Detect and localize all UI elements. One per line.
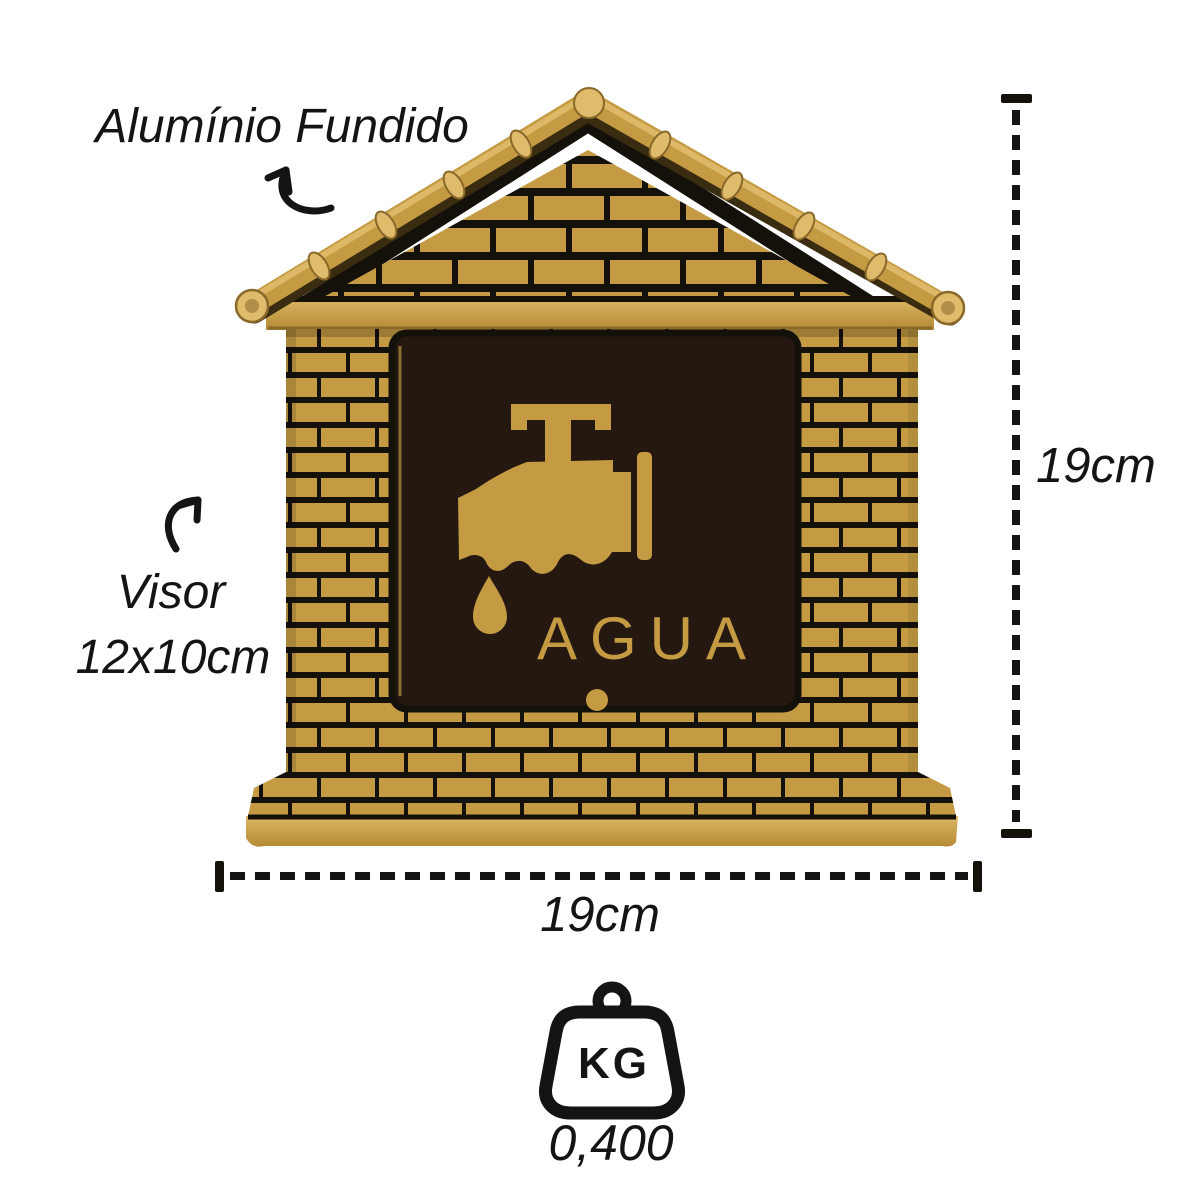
weight-unit-label: KG <box>578 1039 650 1088</box>
material-arrow <box>268 170 331 211</box>
visor-label-line1: Visor <box>117 566 228 619</box>
height-dimension-line <box>1001 94 1032 838</box>
visor-label-line2: 12x10cm <box>76 631 271 684</box>
base-bricks <box>248 772 956 816</box>
agua-label: AGUA <box>537 605 759 672</box>
inspection-window: AGUA <box>392 333 798 711</box>
product-dimension-diagram: AGUA <box>0 0 1200 1200</box>
material-label: Alumínio Fundido <box>92 100 469 153</box>
height-dimension-label: 19cm <box>1036 439 1156 493</box>
weight-icon: KG <box>546 987 679 1113</box>
weight-value: 0,400 <box>548 1115 673 1171</box>
visor-arrow <box>168 500 198 549</box>
lintel-beam <box>266 297 934 330</box>
base-plinth <box>246 816 958 847</box>
screw-dot <box>586 689 608 711</box>
meter-box-product: AGUA <box>236 88 964 847</box>
diagram-svg: AGUA <box>0 0 1200 1200</box>
roof-apex-cap <box>574 88 604 118</box>
width-dimension-label: 19cm <box>540 888 660 942</box>
